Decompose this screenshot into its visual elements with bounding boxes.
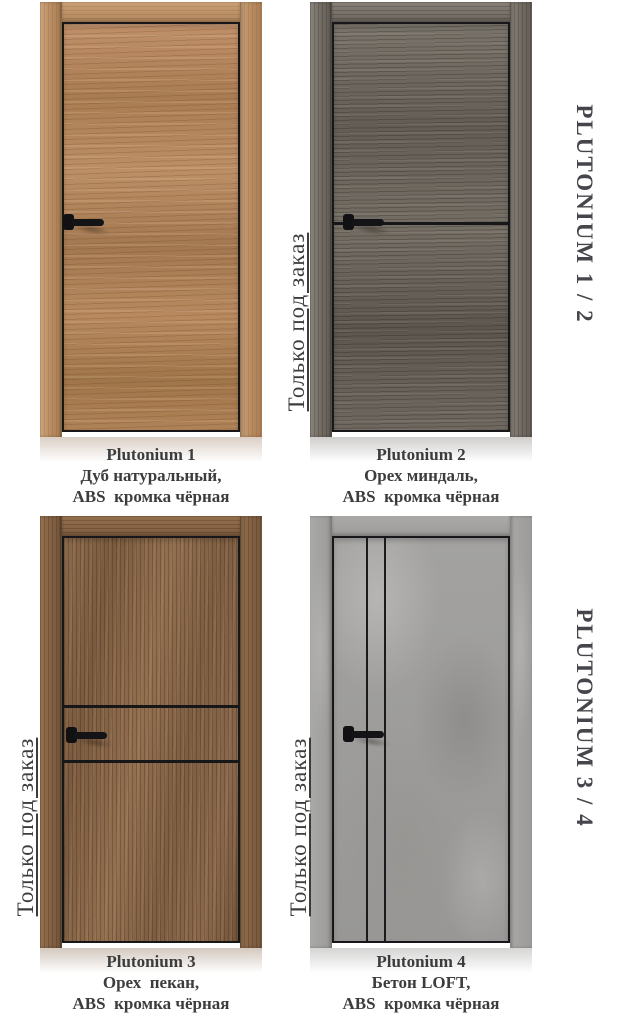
order-note-plutonium-2: Только под заказ — [284, 233, 310, 412]
series-label-plutonium-3-4: PLUTONIUM 3 / 4 — [571, 608, 597, 827]
door-card-plutonium-2 — [310, 2, 532, 437]
door-frame-right — [510, 2, 532, 437]
door-frame-top — [62, 516, 240, 536]
handle-lever — [351, 219, 384, 226]
door-finish: Орех миндаль, — [291, 465, 551, 486]
door-caption-plutonium-3: Plutonium 3 Орех пекан, ABS кромка чёрна… — [21, 951, 281, 1014]
series-label-plutonium-1-2: PLUTONIUM 1 / 2 — [571, 104, 597, 323]
door-accent-line-horizontal-lower — [64, 760, 238, 763]
door-handle-icon — [63, 214, 109, 232]
handle-lever — [351, 731, 384, 738]
catalog-page: Plutonium 1 Дуб натуральный, ABS кромка … — [0, 0, 623, 1024]
door-edge: ABS кромка чёрная — [291, 486, 551, 507]
order-note-plutonium-3: Только под заказ — [13, 738, 39, 917]
door-frame-top — [332, 2, 510, 22]
door-frame-top — [62, 2, 240, 22]
door-finish: Орех пекан, — [21, 972, 281, 993]
door-frame-right — [510, 516, 532, 948]
door-frame-right — [240, 516, 262, 948]
door-handle-icon — [343, 214, 389, 232]
door-caption-plutonium-4: Plutonium 4 Бетон LOFT, ABS кромка чёрна… — [291, 951, 551, 1014]
door-name: Plutonium 4 — [291, 951, 551, 972]
door-card-plutonium-1 — [40, 2, 262, 437]
handle-lever — [74, 732, 107, 739]
door-frame-left — [40, 2, 62, 437]
door-edge: ABS кромка чёрная — [21, 486, 281, 507]
door-frame-left — [310, 516, 332, 948]
door-frame-right — [240, 2, 262, 437]
door-frame-top — [332, 516, 510, 536]
order-note-plutonium-4: Только под заказ — [286, 738, 312, 917]
handle-lever — [71, 219, 104, 226]
door-card-plutonium-4 — [310, 516, 532, 948]
door-handle-icon — [343, 726, 389, 744]
door-name: Plutonium 2 — [291, 444, 551, 465]
door-accent-line-horizontal-upper — [64, 705, 238, 708]
door-name: Plutonium 1 — [21, 444, 281, 465]
door-finish: Дуб натуральный, — [21, 465, 281, 486]
door-finish: Бетон LOFT, — [291, 972, 551, 993]
door-edge: ABS кромка чёрная — [291, 993, 551, 1014]
door-name: Plutonium 3 — [21, 951, 281, 972]
door-card-plutonium-3 — [40, 516, 262, 948]
door-frame-left — [40, 516, 62, 948]
door-frame-left — [310, 2, 332, 437]
door-caption-plutonium-2: Plutonium 2 Орех миндаль, ABS кромка чёр… — [291, 444, 551, 507]
door-caption-plutonium-1: Plutonium 1 Дуб натуральный, ABS кромка … — [21, 444, 281, 507]
door-handle-icon — [66, 727, 112, 745]
door-edge: ABS кромка чёрная — [21, 993, 281, 1014]
